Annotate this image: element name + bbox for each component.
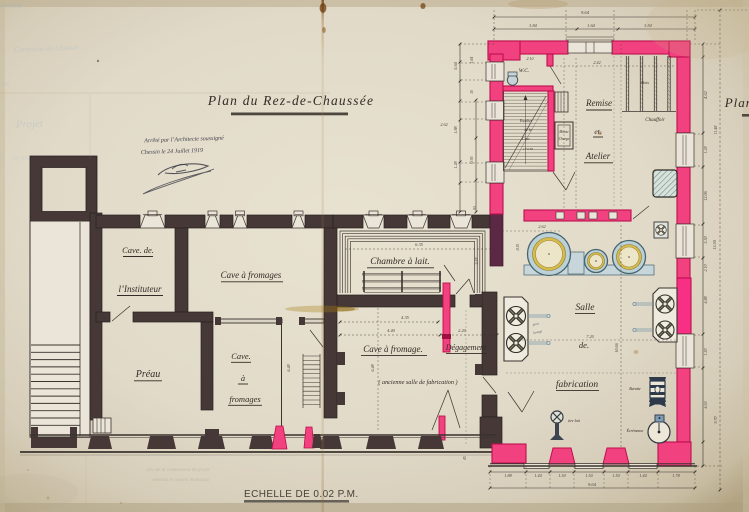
svg-text:17 0.30: 17 0.30 [523,147,533,151]
svg-text:2.20: 2.20 [458,328,466,333]
svg-text:1.50: 1.50 [558,473,566,478]
svg-text:Bois: Bois [641,80,649,85]
svg-text:3.84: 3.84 [529,23,537,28]
svg-text:5.64: 5.64 [453,61,458,69]
svg-text:2.10: 2.10 [703,265,708,272]
svg-text:ECHELLE DE 0.02 P.M.: ECHELLE DE 0.02 P.M. [244,489,359,500]
svg-text:1.44: 1.44 [639,473,646,478]
svg-text:1.64: 1.64 [470,57,474,64]
svg-text:1.88: 1.88 [453,125,458,133]
svg-text:avis de la commission du proje: avis de la commission du projet [146,468,210,473]
svg-text:Chambre à lait.: Chambre à lait. [370,257,430,267]
svg-text:Salle: Salle [576,303,595,313]
svg-text:4.35: 4.35 [401,315,409,320]
svg-text:9.64: 9.64 [588,482,597,487]
svg-text:Cave.: Cave. [231,351,251,361]
svg-text:Écrémeuse: Écrémeuse [626,428,644,433]
svg-text:30: 30 [470,90,474,94]
svg-text:Escalier: Escalier [519,119,533,123]
svg-text:1.88: 1.88 [504,473,512,478]
svg-text:Cave. de.: Cave. de. [122,245,154,255]
svg-text:6.48: 6.48 [286,363,291,371]
svg-text:Duplicata: Duplicata [0,2,23,11]
svg-text:Projet: Projet [15,118,45,132]
svg-text:1.78: 1.78 [672,473,680,478]
svg-text:9.64: 9.64 [581,10,590,15]
svg-text:3.44: 3.44 [474,258,479,265]
svg-text:l’Instituteur: l’Instituteur [119,284,162,294]
svg-text:W.C.: W.C. [519,68,530,74]
svg-text:4.88: 4.88 [703,295,708,303]
svg-text:10.66: 10.66 [614,342,619,352]
svg-text:1.44: 1.44 [534,473,541,478]
svg-text:13.50: 13.50 [712,239,717,249]
svg-text:4.40: 4.40 [387,328,395,333]
svg-text:6.35: 6.35 [415,242,423,247]
svg-text:Atelier: Atelier [585,151,611,161]
svg-text:4.62: 4.62 [703,90,708,98]
svg-text:2.42: 2.42 [593,60,600,65]
svg-text:2.10: 2.10 [527,56,534,61]
svg-text:de la: de la [524,128,531,132]
svg-text:Cave à fromage.: Cave à fromage. [363,344,422,354]
svg-text:Préau: Préau [135,369,160,380]
svg-text:à: à [241,373,245,383]
svg-text:0.35: 0.35 [516,244,520,251]
svg-text:4.63: 4.63 [703,401,708,408]
svg-text:Baratte: Baratte [629,387,641,391]
svg-text:1.28: 1.28 [703,147,708,154]
svg-text:6.48: 6.48 [370,363,375,371]
svg-text:7.20: 7.20 [586,334,594,339]
svg-text:( ancienne salle de fabricatio: ( ancienne salle de fabrication ) [378,379,457,386]
svg-text:1.50: 1.50 [703,349,708,356]
svg-text:fabrication: fabrication [556,379,598,390]
svg-text:5.50: 5.50 [703,235,708,243]
svg-text:Chauffoir: Chauffoir [645,118,665,123]
svg-text:2.62: 2.62 [440,122,447,127]
svg-text:9.70: 9.70 [713,417,718,424]
svg-text:Remise: Remise [585,98,612,108]
svg-text:1.28: 1.28 [453,160,458,168]
svg-text:95: 95 [472,206,477,210]
svg-text:2.62: 2.62 [538,224,545,229]
svg-text:12.06: 12.06 [703,190,708,200]
svg-text:0.95: 0.95 [469,156,474,163]
svg-text:45: 45 [463,456,467,460]
svg-text:Plan: Plan [724,95,749,110]
svg-text:11.48: 11.48 [713,126,718,135]
svg-text:de.: de. [579,340,589,350]
svg-text:1.50: 1.50 [585,473,593,478]
svg-text:entendu le conseil municipal: entendu le conseil municipal [152,478,210,483]
svg-text:annexe: annexe [0,80,10,88]
svg-text:Cave à fromages: Cave à fromages [221,270,282,280]
svg-text:1.50: 1.50 [612,473,620,478]
svg-text:Plan du Rez-de-Chaussée: Plan du Rez-de-Chaussée [207,93,374,108]
svg-text:tire lait: tire lait [568,418,581,423]
svg-text:1.64: 1.64 [587,23,595,28]
svg-text:fromages: fromages [229,394,261,404]
svg-text:Cave: Cave [522,137,530,141]
svg-text:Monte: Monte [558,130,569,134]
